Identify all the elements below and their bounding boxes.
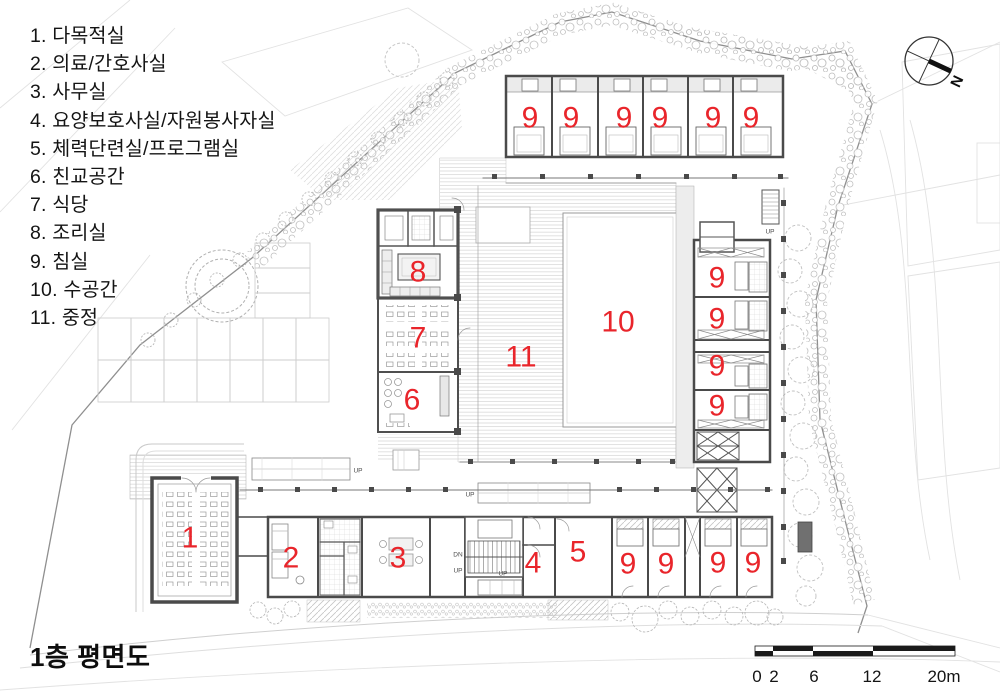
scale-tick-label: 0 (752, 667, 761, 686)
legend-item-label: 수공간 (63, 279, 117, 301)
legend-item-number: 2. (30, 53, 52, 75)
legend-item: 3. 사무실 (30, 78, 276, 106)
room-number-label: 9 (616, 102, 633, 135)
legend-item-number: 3. (30, 81, 52, 103)
seating-right (200, 492, 230, 586)
room-number-label: 9 (563, 102, 580, 135)
room-number-label: 6 (404, 384, 421, 417)
stair-northeast (762, 190, 779, 224)
room-number-label: 8 (410, 256, 427, 289)
room-number-label: 9 (745, 547, 762, 580)
ramp-northwest (252, 458, 350, 480)
legend-item-number: 8. (30, 222, 52, 244)
legend-item-label: 침실 (52, 251, 88, 273)
legend-item: 8. 조리실 (30, 219, 276, 247)
legend-item: 5. 체력단련실/프로그램실 (30, 135, 276, 163)
room-number-label: 4 (525, 547, 542, 580)
scale-tick-label: 12 (863, 667, 882, 686)
legend-item-label: 의료/간호사실 (52, 53, 166, 75)
legend-item-number: 4. (30, 110, 52, 132)
legend-item: 11. 중정 (30, 304, 276, 332)
plan-annotation: UP (453, 567, 462, 574)
right-bedroom-wing (676, 186, 812, 564)
facade-columns-east (781, 200, 786, 564)
south-planting (250, 600, 783, 632)
legend-item-number: 10. (30, 279, 63, 301)
legend-item-number: 7. (30, 194, 52, 216)
plan-annotation: UP (498, 570, 507, 577)
scale-tick-label: 2 (769, 667, 778, 686)
plan-annotation: UP (353, 467, 362, 474)
legend-item-label: 다목적실 (52, 25, 125, 47)
room-number-label: 9 (620, 548, 637, 581)
ramp-entry (478, 483, 590, 503)
room-number-label: 9 (522, 102, 539, 135)
legend-item: 10. 수공간 (30, 276, 276, 304)
legend-item-label: 친교공간 (52, 166, 125, 188)
floor-plan-page: 99999987611109999123459999 UPUPUPDNUPUP … (0, 0, 1000, 700)
room-number-label: 9 (709, 390, 726, 423)
room-number-label: 9 (743, 102, 760, 135)
courtyard-planter (476, 207, 530, 243)
legend: 1. 다목적실2. 의료/간호사실3. 사무실4. 요양보호사실/자원봉사자실5… (30, 22, 276, 332)
room-number-label: 10 (601, 306, 634, 339)
scale-tick-labels: 0261220m (752, 667, 960, 686)
room-number-label: 1 (182, 522, 199, 555)
tree-small (385, 43, 419, 77)
legend-item: 7. 식당 (30, 191, 276, 219)
legend-item-number: 11. (30, 307, 62, 329)
legend-item-number: 6. (30, 166, 52, 188)
legend-item-label: 체력단련실/프로그램실 (52, 138, 239, 160)
legend-item-number: 5. (30, 138, 52, 160)
room-number-label: 9 (705, 102, 722, 135)
legend-item-label: 중정 (62, 307, 98, 329)
room-number-label: 5 (570, 536, 587, 569)
legend-item-number: 9. (30, 251, 52, 273)
plan-annotation: UP (765, 228, 774, 235)
legend-item: 1. 다목적실 (30, 22, 276, 50)
legend-item-label: 요양보호사실/자원봉사자실 (52, 110, 275, 132)
legend-item: 4. 요양보호사실/자원봉사자실 (30, 107, 276, 135)
room-number-label: 11 (505, 341, 536, 374)
legend-item: 2. 의료/간호사실 (30, 50, 276, 78)
plan-annotation: UP (465, 491, 474, 498)
room-number-label: 9 (710, 547, 727, 580)
legend-item: 6. 친교공간 (30, 163, 276, 191)
room-number-label: 3 (390, 542, 407, 575)
utility-box (798, 522, 812, 552)
scale-tick-label: 20m (927, 667, 960, 686)
wc-block (320, 519, 360, 595)
room-number-label: 9 (709, 350, 726, 383)
legend-item-label: 조리실 (52, 222, 106, 244)
legend-item-label: 식당 (52, 194, 88, 216)
scale-tick-label: 6 (809, 667, 818, 686)
room-number-label: 9 (652, 102, 669, 135)
planting-patch (290, 78, 462, 200)
legend-item-label: 사무실 (52, 81, 106, 103)
page-title: 1층 평면도 (30, 637, 150, 674)
room-number-label: 9 (709, 262, 726, 295)
room-number-label: 9 (658, 548, 675, 581)
room-number-label: 2 (283, 542, 300, 575)
legend-item: 9. 침실 (30, 248, 276, 276)
room-number-label: 9 (709, 303, 726, 336)
plan-annotation: DN (453, 551, 463, 558)
scale-bar: 0261220m (752, 646, 960, 686)
room-number-label: 7 (410, 322, 427, 355)
legend-list: 1. 다목적실2. 의료/간호사실3. 사무실4. 요양보호사실/자원봉사자실5… (30, 22, 276, 332)
legend-item-number: 1. (30, 25, 52, 47)
